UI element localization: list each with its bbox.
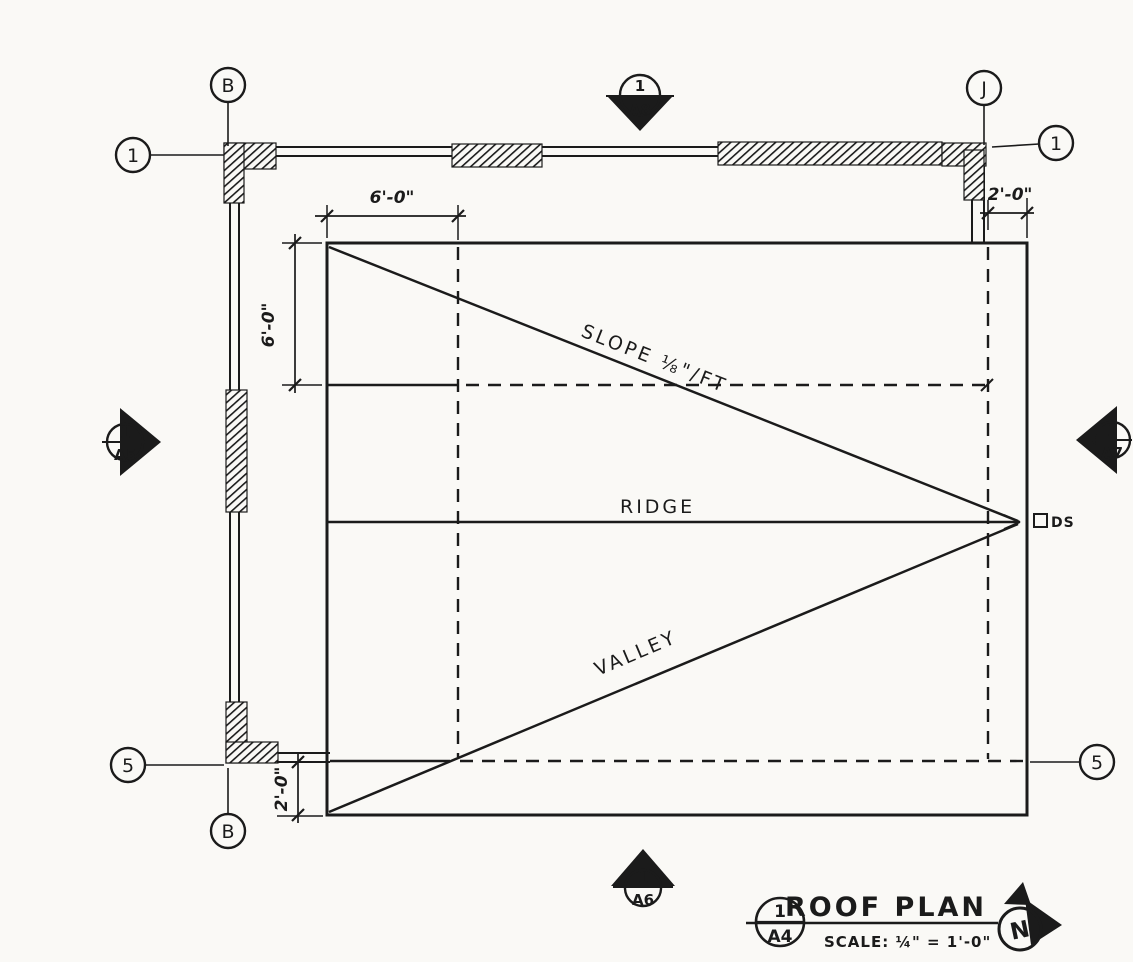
- section-marker-bottom-a6: 1 A6: [611, 849, 675, 909]
- section-marker-top-number: 1: [635, 77, 645, 95]
- roof-outline: [327, 243, 1027, 815]
- grid-bubble-j-top: J: [967, 71, 1001, 145]
- section-marker-bottom-sheet: A6: [632, 891, 654, 909]
- grid-bubble-b-bottom-label: B: [221, 821, 234, 843]
- grid-bubble-1-left-label: 1: [127, 145, 139, 167]
- grid-bubble-j-top-label: J: [980, 78, 987, 100]
- north-arrow: N: [999, 882, 1062, 950]
- downspout-box-icon: [1034, 514, 1047, 527]
- roof-plan-drawing: DS SLOPE ⅛"/FT RIDGE VALLEY 6'-0" 6'-0" …: [0, 0, 1133, 962]
- dimension-text-bottom-left: 2'-0": [272, 767, 292, 812]
- section-marker-right-number: 1: [1107, 422, 1117, 440]
- grid-bubble-b-top-label: B: [221, 75, 234, 97]
- roof-plan-sheet: DS SLOPE ⅛"/FT RIDGE VALLEY 6'-0" 6'-0" …: [0, 0, 1133, 962]
- section-marker-top-a8: 1 A8: [606, 75, 674, 131]
- hatch-corner-top-left-v: [224, 143, 244, 203]
- hatch-top-long: [718, 142, 942, 165]
- hatch-corner-bottom-left-h: [226, 742, 278, 763]
- valley-line: [329, 524, 1018, 812]
- grid-bubble-5-right-label: 5: [1091, 752, 1103, 774]
- grid-bubble-b-bottom: B: [211, 768, 245, 848]
- grid-bubble-b-top: B: [211, 68, 245, 146]
- drawing-title: ROOF PLAN: [785, 892, 987, 923]
- drawing-scale-note: SCALE: ¼" = 1'-0": [824, 933, 991, 951]
- downspout: DS: [1034, 514, 1075, 531]
- section-marker-right-a7: 1 A7: [1076, 406, 1132, 474]
- title-block: 1 A4 ROOF PLAN SCALE: ¼" = 1'-0": [746, 892, 998, 951]
- grid-bubble-1-right-label: 1: [1050, 133, 1062, 155]
- section-marker-left-sheet: A5: [114, 446, 136, 464]
- dimension-text-left: 6'-0": [259, 303, 279, 348]
- section-marker-bottom-number: 1: [638, 869, 648, 887]
- grid-bubble-1-right: 1: [992, 126, 1073, 160]
- section-marker-left-a5: 1 A5: [102, 408, 161, 476]
- valley-label: VALLEY: [591, 626, 680, 680]
- section-marker-right-sheet: A7: [1101, 444, 1123, 462]
- section-marker-left-number: 1: [120, 424, 130, 442]
- grid-bubble-1-left: 1: [116, 138, 224, 172]
- section-marker-top-sheet: A8: [629, 101, 651, 119]
- dimension-text-top-right: 2'-0": [988, 185, 1033, 205]
- ridge-label: RIDGE: [620, 496, 695, 518]
- dimension-top-right: 2'-0": [980, 185, 1034, 238]
- hatch-corner-top-right-v: [964, 150, 984, 200]
- dimension-top-left: 6'-0": [315, 188, 466, 240]
- downspout-label: DS: [1051, 515, 1075, 531]
- hatch-left-mid: [226, 390, 247, 512]
- grid-bubble-5-right: 5: [1030, 745, 1114, 779]
- dimension-text-top-left: 6'-0": [370, 188, 415, 208]
- grid-bubble-5-left: 5: [111, 748, 224, 782]
- hatch-top-mid: [452, 144, 542, 167]
- dimension-bottom-left: 2'-0": [272, 754, 323, 823]
- grid-bubble-5-left-label: 5: [122, 755, 134, 777]
- title-sheet-number: A4: [768, 927, 793, 947]
- dimension-left: 6'-0": [259, 234, 322, 393]
